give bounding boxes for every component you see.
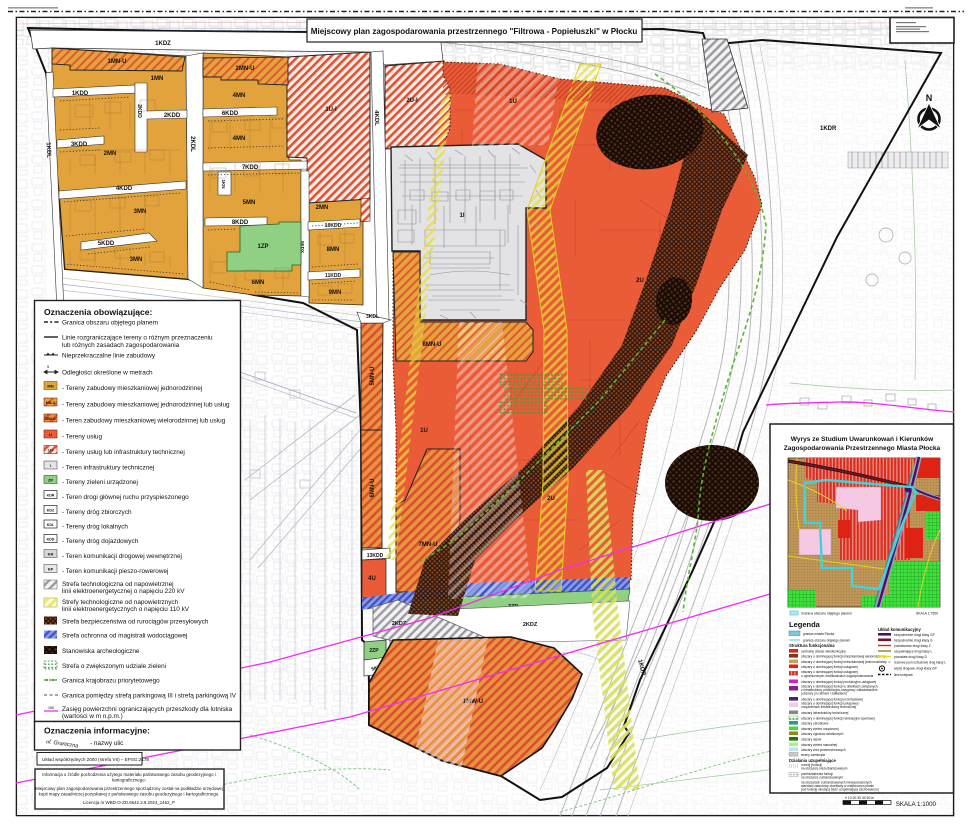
svg-text:2MN-U: 2MN-U [236,66,255,72]
svg-text:- Tereny zieleni urządzonej: - Tereny zieleni urządzonej [62,479,138,486]
svg-text:lub różnych zasadach zagospoda: lub różnych zasadach zagospodarowania [62,342,180,349]
svg-text:Strefa ochronna od magistrali: Strefa ochronna od magistrali wodociągow… [62,633,187,640]
svg-text:U: U [49,432,52,437]
svg-text:granica miasta Płocka: granica miasta Płocka [803,632,834,636]
svg-text:1KDD: 1KDD [72,91,89,97]
svg-text:1KDL: 1KDL [45,142,52,158]
svg-text:bezpośrednie drogi klasy GP: bezpośrednie drogi klasy GP [894,633,935,637]
svg-text:obszary o dominującej funkcji: obszary o dominującej funkcji produkcyjn… [801,680,876,684]
svg-text:linii elektroenergetycznych o: linii elektroenergetycznych o napięciu 1… [62,606,190,613]
svg-text:Układ komunikacyjny: Układ komunikacyjny [878,627,921,632]
svg-text:11KDD: 11KDD [325,273,342,279]
svg-text:pod funkcję wiodącą bądź uzupe: pod funkcję wiodącą bądź uzupełniającą z… [801,788,879,792]
svg-text:2U: 2U [636,278,644,284]
svg-text:2U-I: 2U-I [406,98,418,104]
svg-text:KDZ: KDZ [47,509,55,513]
svg-text:1KDZ: 1KDZ [155,41,171,47]
svg-text:8MN-U: 8MN-U [423,342,442,348]
svg-text:bezpośrednie drogi klasy G: bezpośrednie drogi klasy G [894,639,933,643]
svg-text:5MN: 5MN [243,200,256,206]
svg-text:2MN: 2MN [316,205,329,211]
svg-text:1MN: 1MN [151,76,164,82]
svg-text:U-I: U-I [48,449,53,453]
svg-text:4KDL: 4KDL [373,110,380,126]
svg-text:obszary lasów: obszary lasów [801,738,822,742]
svg-text:1ZP: 1ZP [257,244,268,250]
svg-text:- Tereny dróg lokalnych: - Tereny dróg lokalnych [62,524,128,531]
svg-text:Wyrys ze Studium Uwarunkowań i: Wyrys ze Studium Uwarunkowań i Kierunków [791,436,934,443]
svg-text:0 10 20 30 40 50 m: 0 10 20 30 40 50 m [845,796,874,800]
svg-text:ZP: ZP [48,478,53,483]
svg-text:1I: 1I [459,213,464,219]
svg-text:uzupełniające drogi klasy L: uzupełniające drogi klasy L [894,650,933,654]
svg-text:obszary o dominującej funkcji: obszary o dominującej funkcji rekreacyjn… [801,717,875,721]
svg-text:3KDD: 3KDD [71,142,88,148]
svg-text:o ograniczonych możliwościach: o ograniczonych możliwościach zagospodar… [801,674,874,678]
svg-text:kopii mapy zasadniczej pozyska: kopii mapy zasadniczej pozyskanej z pańs… [39,792,220,797]
svg-text:SKALA 1:1000: SKALA 1:1000 [896,801,937,808]
svg-text:- Tereny zabudowy mieszkaniowe: - Tereny zabudowy mieszkaniowej jednorod… [62,385,202,392]
svg-text:obszary o dominującej funkcji: obszary o dominującej funkcji mieszkanio… [801,660,886,664]
svg-text:2KDZ: 2KDZ [523,622,538,628]
svg-text:- Tereny dróg zbiorczych: - Tereny dróg zbiorczych [62,509,132,516]
svg-text:Oznaczenia obowiązujące:: Oznaczenia obowiązujące: [44,307,153,317]
svg-text:6MN-U: 6MN-U [370,479,376,498]
svg-text:Układ współrzędnych 2000 (stre: Układ współrzędnych 2000 (strefa VII) – … [42,757,149,762]
svg-text:obszary o dominującej funkcji: obszary o dominującej funkcji usługowej [801,665,858,669]
svg-text:MN-U: MN-U [46,401,56,405]
svg-text:Struktura funkcjonalna: Struktura funkcjonalna [789,643,835,648]
svg-text:obszary o dominującej funkcji: obszary o dominującej funkcji mieszkanio… [801,655,886,659]
svg-text:obszary zieleni naturalnej: obszary zieleni naturalnej [801,743,837,747]
svg-text:2U: 2U [547,496,555,502]
svg-text:Granica obszaru objętego plane: Granica obszaru objętego planem [62,320,158,327]
svg-text:Legenda: Legenda [789,620,821,629]
svg-text:Nieprzekraczalne linie zabudow: Nieprzekraczalne linie zabudowy [62,353,156,360]
svg-text:tereny zamknięte: tereny zamknięte [801,753,825,757]
svg-text:Zasięg powierzchni ograniczają: Zasięg powierzchni ograniczających przes… [62,706,233,713]
svg-text:linii elektroenergetycznej o n: linii elektroenergetycznej o napięciu 22… [62,588,185,595]
svg-text:I: I [50,463,51,468]
svg-text:KR: KR [48,552,54,557]
svg-text:MW-U: MW-U [45,417,56,421]
svg-text:MN: MN [47,384,53,389]
svg-text:4MN: 4MN [233,93,246,99]
svg-text:KDD: KDD [47,538,55,542]
svg-text:4MN: 4MN [233,136,246,142]
svg-text:SKALA 1:7500: SKALA 1:7500 [916,612,938,616]
svg-text:N: N [926,93,933,103]
svg-text:6KDD: 6KDD [222,111,239,117]
svg-text:- Teren komunikacji pieszo-row: - Teren komunikacji pieszo-rowerowej [62,568,168,575]
svg-text:Strefa technologiczna od napow: Strefa technologiczna od napowietrznej [62,581,174,588]
svg-text:Strefa o zwiększonym udziale z: Strefa o zwiększonym udziale zieleni [62,663,166,670]
svg-text:na obszarze niezurbanizowanym: na obszarze niezurbanizowanym [801,767,848,771]
svg-text:Stanowiska archeologiczne: Stanowiska archeologiczne [62,648,140,655]
svg-text:3MN: 3MN [134,209,147,215]
svg-text:obszary ogrodów działkowych: obszary ogrodów działkowych [801,732,844,736]
svg-text:155: 155 [48,706,54,710]
svg-text:obszary ośrodkowe: obszary ośrodkowe [801,722,829,726]
svg-text:Linie rozgraniczające tereny o: Linie rozgraniczające tereny o różnym pr… [62,335,213,342]
svg-text:2KDL: 2KDL [189,136,195,152]
svg-text:KP: KP [48,567,54,572]
svg-text:13KDD: 13KDD [367,553,384,559]
svg-text:Miejscowy plan zagospodarowani: Miejscowy plan zagospodarowania przestrz… [311,27,638,36]
svg-text:Licencja nr WBD-O-ZD.6642.2.9.: Licencja nr WBD-O-ZD.6642.2.9.2024_1462_… [83,800,175,805]
svg-text:Zagospodarowania Przestrzenneg: Zagospodarowania Przestrzennego Miasta P… [784,445,941,452]
svg-text:1U-I: 1U-I [325,107,337,113]
svg-text:1U: 1U [509,99,517,105]
svg-text:Miejscowy plan zagospodarowani: Miejscowy plan zagospodarowania przestrz… [35,786,223,791]
svg-text:(wartości w m n.p.m.): (wartości w m n.p.m.) [62,713,123,720]
svg-text:granica obszaru objętego plane: granica obszaru objętego planem [803,639,850,643]
svg-text:2KDD: 2KDD [164,113,181,119]
svg-text:8MN: 8MN [327,247,340,253]
svg-text:obszary zieleni urządzonej: obszary zieleni urządzonej [801,727,839,731]
svg-text:- Tereny zabudowy mieszkaniowe: - Tereny zabudowy mieszkaniowej jednorod… [62,402,230,409]
svg-text:pozostałe drogi klasy D: pozostałe drogi klasy D [894,655,928,659]
svg-text:linie kolejowe: linie kolejowe [894,673,913,677]
svg-text:- Teren infrastruktury technic: - Teren infrastruktury technicznej [62,465,154,472]
svg-text:Strefa bezpieczeństwa od ruroc: Strefa bezpieczeństwa od rurociągów prze… [62,619,209,626]
svg-text:- Tereny usług lub infrastrukt: - Tereny usług lub infrastruktury techni… [62,449,185,456]
svg-text:na obszarze zurbanizowanym: na obszarze zurbanizowanym [801,776,844,780]
svg-text:5MN-U: 5MN-U [370,367,376,386]
svg-text:- nazwy ulic: - nazwy ulic [90,740,124,747]
svg-text:KDL: KDL [47,523,55,527]
svg-text:Odległości określone w metrach: Odległości określone w metrach [62,370,153,377]
svg-text:Oznaczenia informacyjne:: Oznaczenia informacyjne: [44,726,150,736]
svg-text:(obszary po rafinerii i zakład: (obszary po rafinerii i zakładach) [801,692,847,696]
svg-text:- Teren zabudowy mieszkaniowej: - Teren zabudowy mieszkaniowej wielorodz… [62,418,226,425]
svg-text:rezerwa pod rozbudowę dróg kla: rezerwa pod rozbudowę dróg klasy L [894,661,946,665]
svg-text:3MN: 3MN [130,257,143,263]
svg-text:KDR: KDR [47,494,55,498]
svg-text:- Tereny usług: - Tereny usług [62,434,102,441]
svg-text:1MN-U: 1MN-U [108,59,127,65]
svg-text:10KDD: 10KDD [325,223,342,229]
svg-text:7MN-U: 7MN-U [419,542,438,548]
svg-text:Granica obszaru objętego plane: Granica obszaru objętego planem [801,612,852,616]
svg-text:centralny obszar wielofunkcyjn: centralny obszar wielofunkcyjny [801,650,846,654]
svg-text:- Teren drogi głównej ruchu pr: - Teren drogi głównej ruchu przyspieszon… [62,494,189,501]
svg-text:Strefy technologiczne od napow: Strefy technologiczne od napowietrznych [62,599,179,606]
svg-text:kartograficznego:: kartograficznego: [112,778,146,783]
svg-text:podstawowe drogi klasy Z: podstawowe drogi klasy Z [894,644,931,648]
svg-text:1KN: 1KN [221,179,226,188]
svg-text:3KDL: 3KDL [366,314,379,320]
svg-text:8KDD: 8KDD [232,220,249,226]
svg-text:- Teren komunikacji drogowej w: - Teren komunikacji drogowej wewnętrznej [62,553,182,560]
svg-text:2MN: 2MN [104,151,117,157]
svg-text:1U: 1U [420,428,428,434]
svg-text:Granica pomiędzy strefą parkin: Granica pomiędzy strefą parkingową III i… [62,693,237,700]
svg-text:5KDD: 5KDD [98,241,115,247]
svg-text:4U: 4U [368,576,376,582]
svg-text:1KDR: 1KDR [820,126,837,132]
svg-text:4KDD: 4KDD [116,186,133,192]
svg-text:Informacja o źródle pochodzeni: Informacja o źródle pochodzenia użytego … [42,772,216,777]
svg-text:6MN: 6MN [252,280,265,286]
svg-text:- Tereny dróg dojazdowych: - Tereny dróg dojazdowych [62,538,139,545]
svg-text:Granica krajobrazu priorytetow: Granica krajobrazu priorytetowego [62,678,160,685]
svg-text:obszary infrastruktury technic: obszary infrastruktury technicznej [801,711,849,715]
svg-text:2ZP: 2ZP [369,648,379,654]
svg-text:obszary wód powierzchniowych: obszary wód powierzchniowych [801,748,846,752]
svg-text:węzły drogowe drogi klasy GP: węzły drogowe drogi klasy GP [894,667,937,671]
svg-text:urządzeniach infrastruktury te: urządzeniach infrastruktury technicznej [801,705,856,709]
